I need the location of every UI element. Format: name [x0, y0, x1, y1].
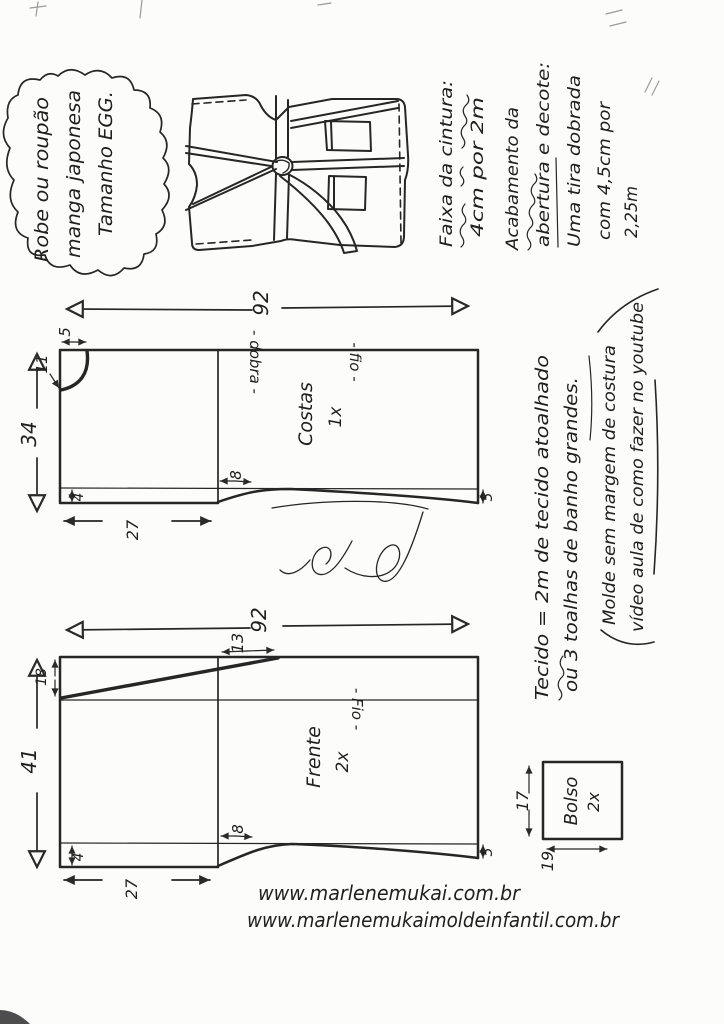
scan-smudge	[0, 1010, 30, 1024]
website-1: www.marlenemukai.com.br	[258, 881, 522, 905]
costas-neckdepth-pointer	[50, 374, 59, 388]
frente-outline	[60, 657, 478, 867]
costas-fold-label: - dobra -	[246, 330, 264, 394]
cloud-line-2: manga japonesa	[63, 90, 85, 258]
frente-length-arrow-left	[67, 628, 250, 630]
frente-neckline-diagonal	[61, 658, 278, 698]
robe-belt-back	[291, 101, 404, 170]
frente-name: Frente	[303, 726, 325, 788]
costas-neckdepth-label: 11	[33, 354, 51, 373]
title-cloud: Robe ou roupão manga japonesa Tamanho EG…	[3, 70, 169, 276]
frente-piece: 92 41 18 13 8 4 5 27 - Fio - Frente 2x	[17, 607, 496, 899]
robe-body-outline	[189, 95, 408, 250]
costas-length-arrow-left	[67, 309, 252, 310]
bolso-quantity: 2x	[584, 792, 603, 812]
costas-curve-arrow-r	[235, 481, 251, 482]
signature	[272, 501, 428, 581]
frente-grain-label: - Fio -	[348, 688, 366, 730]
costas-sideband-label: 5	[480, 492, 496, 501]
websites: www.marlenemukai.com.br www.marlenemukai…	[247, 881, 621, 932]
note-right-3: Acabamento da	[503, 107, 523, 251]
costas-hemband-label: 4	[71, 493, 87, 502]
frente-hemband-label: 4	[71, 853, 87, 862]
note-right-6: com 4,5cm por	[595, 101, 615, 240]
bolso-name: Bolso	[561, 777, 582, 826]
frente-underarm-curve	[218, 844, 478, 866]
frente-quantity: 2x	[333, 751, 353, 773]
costas-neck-curve	[61, 351, 88, 390]
note-pattern-1: Molde sem margem de costura	[600, 345, 620, 625]
notes-right-block: Faixa da cintura: 4cm por 2m Acabamento …	[437, 62, 642, 251]
notes-pattern-block: Molde sem margem de costura vídeo aula d…	[598, 289, 658, 644]
bolso-height-label: 19	[538, 851, 557, 871]
frente-hem-line	[60, 843, 478, 844]
note-right-7: 2,25m	[622, 186, 642, 238]
frente-curve-label: 8	[229, 824, 247, 834]
note-right-5: Uma tira dobrada	[565, 75, 585, 247]
frente-drop-label: 18	[34, 668, 50, 686]
frente-length-label: 92	[247, 607, 271, 632]
costas-width-label: 34	[17, 421, 41, 446]
costas-grain-label: - fio -	[346, 342, 364, 381]
costas-length-label: 92	[249, 290, 273, 315]
bolso-outline	[543, 762, 622, 839]
robe-sketch	[186, 95, 408, 253]
cloud-line-1: Robe ou roupão	[31, 97, 53, 262]
note-pattern-2: vídeo aula de como fazer no youtube	[628, 302, 648, 632]
frente-shoulder-label: 13	[228, 633, 247, 653]
costas-quantity: 1x	[326, 406, 346, 428]
note-right-1: Faixa da cintura:	[437, 80, 457, 247]
costas-outline	[60, 350, 478, 503]
note-right-2: 4cm por 2m	[468, 97, 488, 237]
cloud-outline	[3, 70, 169, 276]
costas-sleevehem-label: 27	[123, 519, 142, 540]
robe-belt-ties	[280, 174, 357, 253]
robe-collar-lines	[186, 146, 277, 210]
frente-length-arrow-right	[283, 624, 468, 626]
frente-sleevehem-label: 27	[122, 878, 141, 899]
costas-name: Costas	[295, 382, 317, 446]
costas-piece: 92 34 5 11 8 4 5 27 - dobra - - fio - Co…	[17, 290, 496, 540]
robe-belt-band	[274, 96, 289, 240]
pattern-drawing: Robe ou roupão manga japonesa Tamanho EG…	[0, 0, 724, 1024]
bolso-width-label: 17	[513, 790, 532, 811]
note-right-4: abertura e decote:	[534, 62, 554, 247]
frente-shoulder-arrow-r	[247, 650, 274, 651]
bolso-piece: 17 19 Bolso 2x	[513, 762, 622, 871]
costas-curve-label: 8	[227, 470, 245, 480]
costas-neckwidth-label: 5	[56, 327, 74, 337]
scanned-sewing-pattern-page: Robe ou roupão manga japonesa Tamanho EG…	[0, 0, 724, 1024]
frente-curve-arrow-r	[236, 836, 252, 837]
note-fabric-2: ou 3 toalhas de banho grandes.	[561, 377, 582, 692]
robe-pocket-bottom	[328, 176, 366, 210]
cloud-line-3: Tamanho EGG.	[95, 91, 117, 236]
note-fabric-1: Tecido = 2m de tecido atoalhado	[532, 355, 553, 700]
notes-fabric-block: Tecido = 2m de tecido atoalhado ou 3 toa…	[532, 355, 592, 700]
costas-length-arrow-right	[282, 306, 468, 308]
website-2: www.marlenemukaimoldeinfantil.com.br	[247, 908, 621, 932]
frente-sideband-label: 5	[480, 847, 496, 856]
frente-width-label: 41	[17, 748, 41, 773]
robe-pocket-top	[325, 121, 371, 151]
